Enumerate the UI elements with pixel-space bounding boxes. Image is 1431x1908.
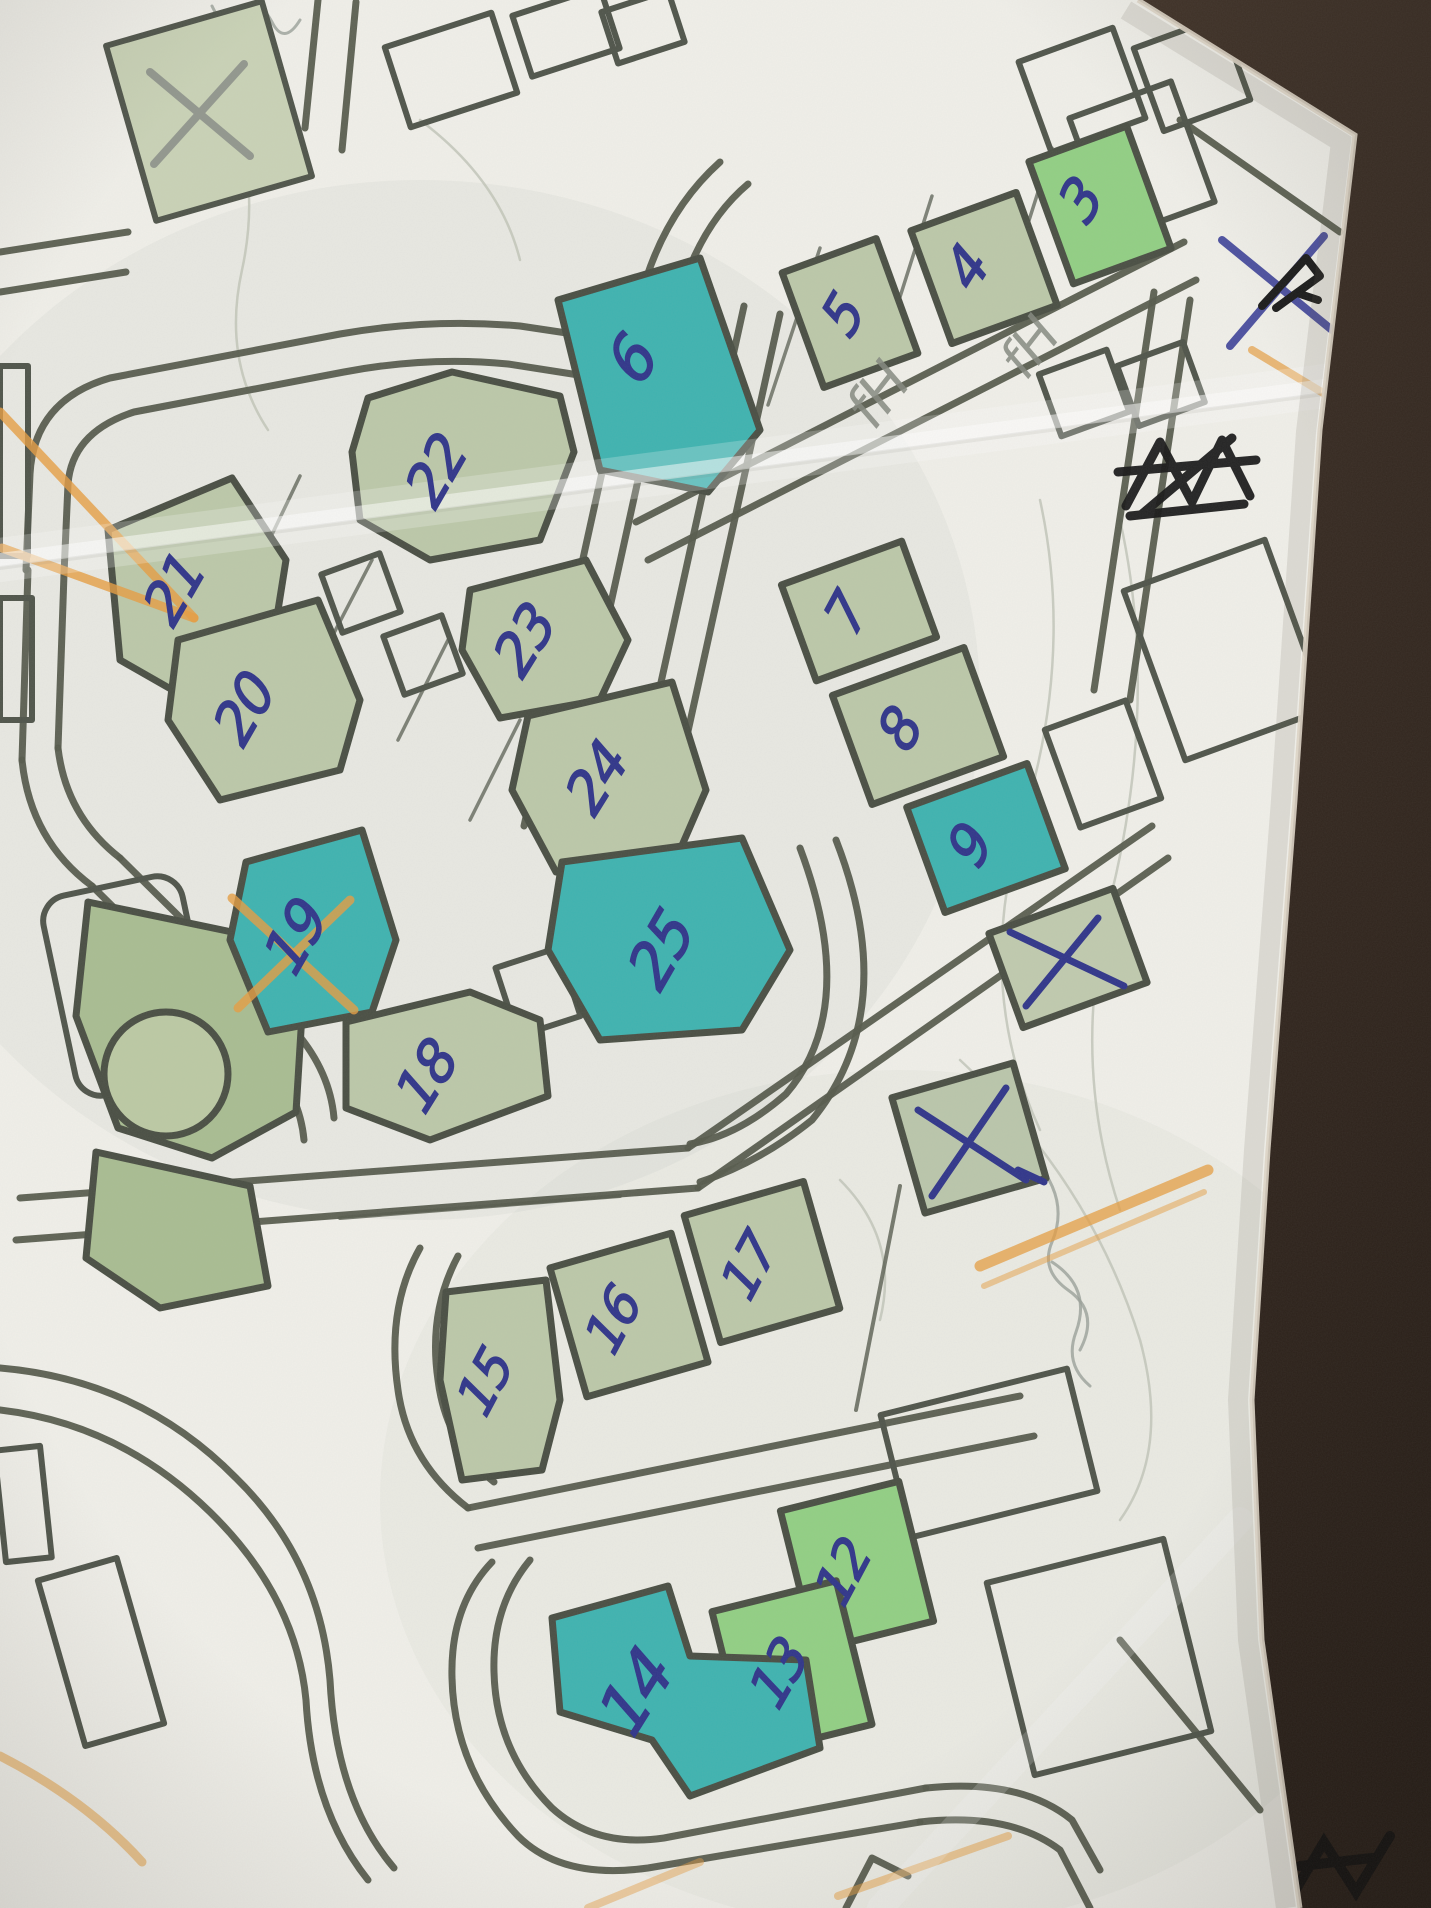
map-photo-canvas: fH fH 3456789121314151617181920212223242… xyxy=(0,0,1431,1908)
photo-vignette xyxy=(0,0,1431,1908)
photo-of-annotated-map: fH fH 3456789121314151617181920212223242… xyxy=(0,0,1431,1908)
